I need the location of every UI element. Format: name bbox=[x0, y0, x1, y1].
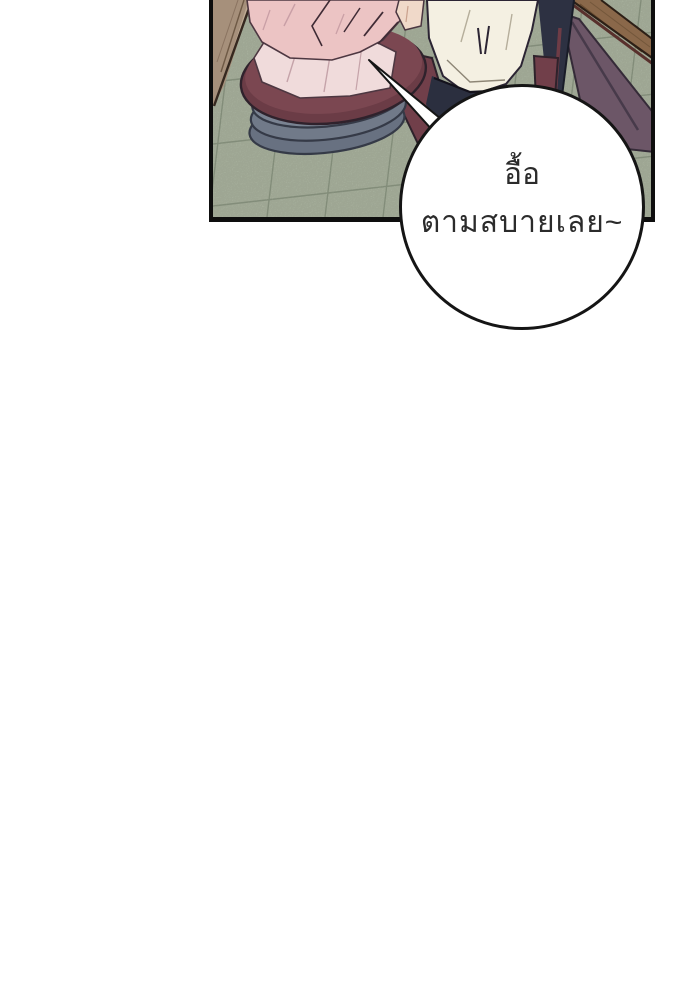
speech-bubble-text-line2: ตามสบายเลย~ bbox=[421, 208, 624, 238]
speech-bubble-text-line1: อื้อ bbox=[504, 160, 540, 190]
comic-page: อื้อ ตามสบายเลย~ bbox=[0, 0, 690, 1000]
speech-bubble: อื้อ ตามสบายเลย~ bbox=[399, 84, 645, 330]
